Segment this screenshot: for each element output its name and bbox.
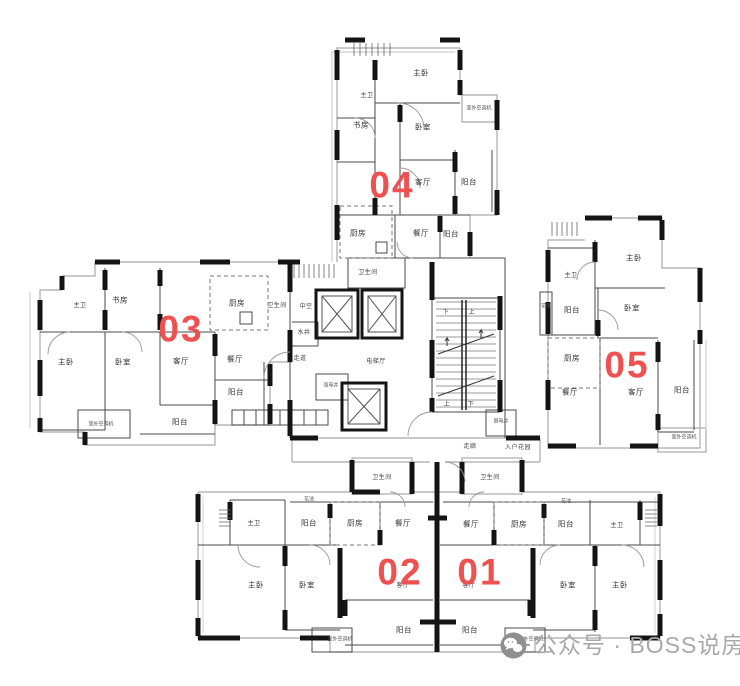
room-label-02: 卫生间	[372, 475, 392, 481]
room-label-01: 厨房	[511, 520, 527, 528]
room-label-03: 书房	[112, 296, 128, 304]
room-label-03: 主卧	[58, 358, 74, 366]
room-label-core: 中空	[299, 304, 312, 310]
room-label-02: 卧室	[299, 581, 315, 589]
room-label-05: 花池	[541, 305, 551, 310]
room-label-04: 主卫	[360, 93, 373, 99]
room-label-03: 阳台	[228, 388, 244, 396]
room-label-05: 阳台	[564, 306, 580, 314]
room-label-03: 主卫	[73, 303, 86, 309]
wechat-icon	[500, 632, 527, 659]
room-label-01: 阳台	[462, 626, 478, 634]
room-label-03: 厨房	[229, 299, 245, 307]
room-label-02: 主卫	[247, 521, 260, 527]
room-label-stairs: 下	[468, 402, 475, 408]
room-label-03: 阳台	[172, 418, 188, 426]
structural-walls	[40, 40, 700, 652]
unit-number-04: 04	[369, 167, 414, 204]
room-label-stairs: 下	[443, 310, 450, 316]
room-label-04: 主卧	[413, 69, 429, 77]
room-label-05: 室外空调机	[671, 436, 696, 441]
room-label-core: 走道	[293, 356, 306, 362]
room-label-05: 主卫	[564, 273, 577, 279]
room-label-core: 水井	[297, 330, 310, 336]
room-label-03: 室外空调机	[88, 423, 113, 428]
room-label-04: 客厅	[415, 178, 431, 186]
room-label-03: 餐厅	[227, 355, 243, 363]
room-label-03: 客厅	[173, 357, 189, 365]
floor-plan-drawing	[0, 0, 740, 686]
room-label-01: 主卧	[612, 581, 628, 589]
room-label-04: 卫生间	[358, 270, 378, 276]
room-label-core: 弱电井	[493, 420, 508, 425]
unit-number-01: 01	[457, 554, 502, 591]
floorplan-page: { "colors": { "unit_number": "#ef5050", …	[0, 0, 740, 686]
room-label-stairs: 上	[469, 310, 476, 316]
room-label-stairs: 上	[444, 402, 451, 408]
room-label-01: 主卫	[610, 523, 623, 529]
room-label-01: 卧室	[560, 581, 576, 589]
watermark: 公众号 · BOSS说房	[500, 632, 740, 659]
room-label-core: 强电井	[323, 384, 338, 389]
room-label-05: 厨房	[564, 354, 580, 362]
room-label-02: 阳台	[301, 519, 317, 527]
unit-number-03: 03	[158, 311, 203, 348]
floor-plan: 主卧主卫书房卧室室外空调机客厅阳台厨房餐厅阳台卫生间主卫书房厨房卫生间主卧卧室客…	[0, 0, 740, 686]
room-label-05: 餐厅	[562, 388, 578, 396]
unit-number-02: 02	[377, 554, 422, 591]
room-label-05: 客厅	[628, 388, 644, 396]
unit-number-05: 05	[604, 347, 649, 384]
room-label-05: 卧室	[624, 304, 640, 312]
room-label-02: 室外空调机	[327, 638, 352, 643]
room-label-01: 花池	[561, 500, 571, 505]
room-label-01: 餐厅	[463, 520, 479, 528]
room-label-04: 阳台	[443, 230, 459, 238]
room-label-01: 阳台	[558, 520, 574, 528]
room-label-03: 卫生间	[267, 303, 287, 309]
staircase	[436, 300, 496, 410]
room-label-04: 厨房	[350, 229, 366, 237]
room-label-core: 走廊	[463, 444, 476, 450]
room-label-02: 厨房	[347, 519, 363, 527]
room-label-01: 卫生间	[480, 475, 500, 481]
room-label-05: 主卧	[626, 254, 642, 262]
room-label-core: 入户花园	[505, 445, 531, 451]
room-label-04: 阳台	[461, 178, 477, 186]
room-label-core: 电梯厅	[366, 359, 386, 365]
elevators	[316, 290, 402, 430]
room-label-05: 阳台	[674, 386, 690, 394]
room-label-04: 室外空调机	[466, 107, 491, 112]
room-label-04: 卧室	[415, 123, 431, 131]
room-label-04: 餐厅	[413, 229, 429, 237]
room-label-03: 卧室	[115, 358, 131, 366]
room-label-02: 主卧	[248, 581, 264, 589]
room-label-04: 书房	[353, 121, 369, 129]
room-label-02: 花池	[304, 498, 314, 503]
room-label-02: 餐厅	[395, 519, 411, 527]
room-label-02: 阳台	[396, 626, 412, 634]
louver-vents	[219, 43, 657, 526]
watermark-text: 公众号 · BOSS说房	[534, 634, 740, 657]
